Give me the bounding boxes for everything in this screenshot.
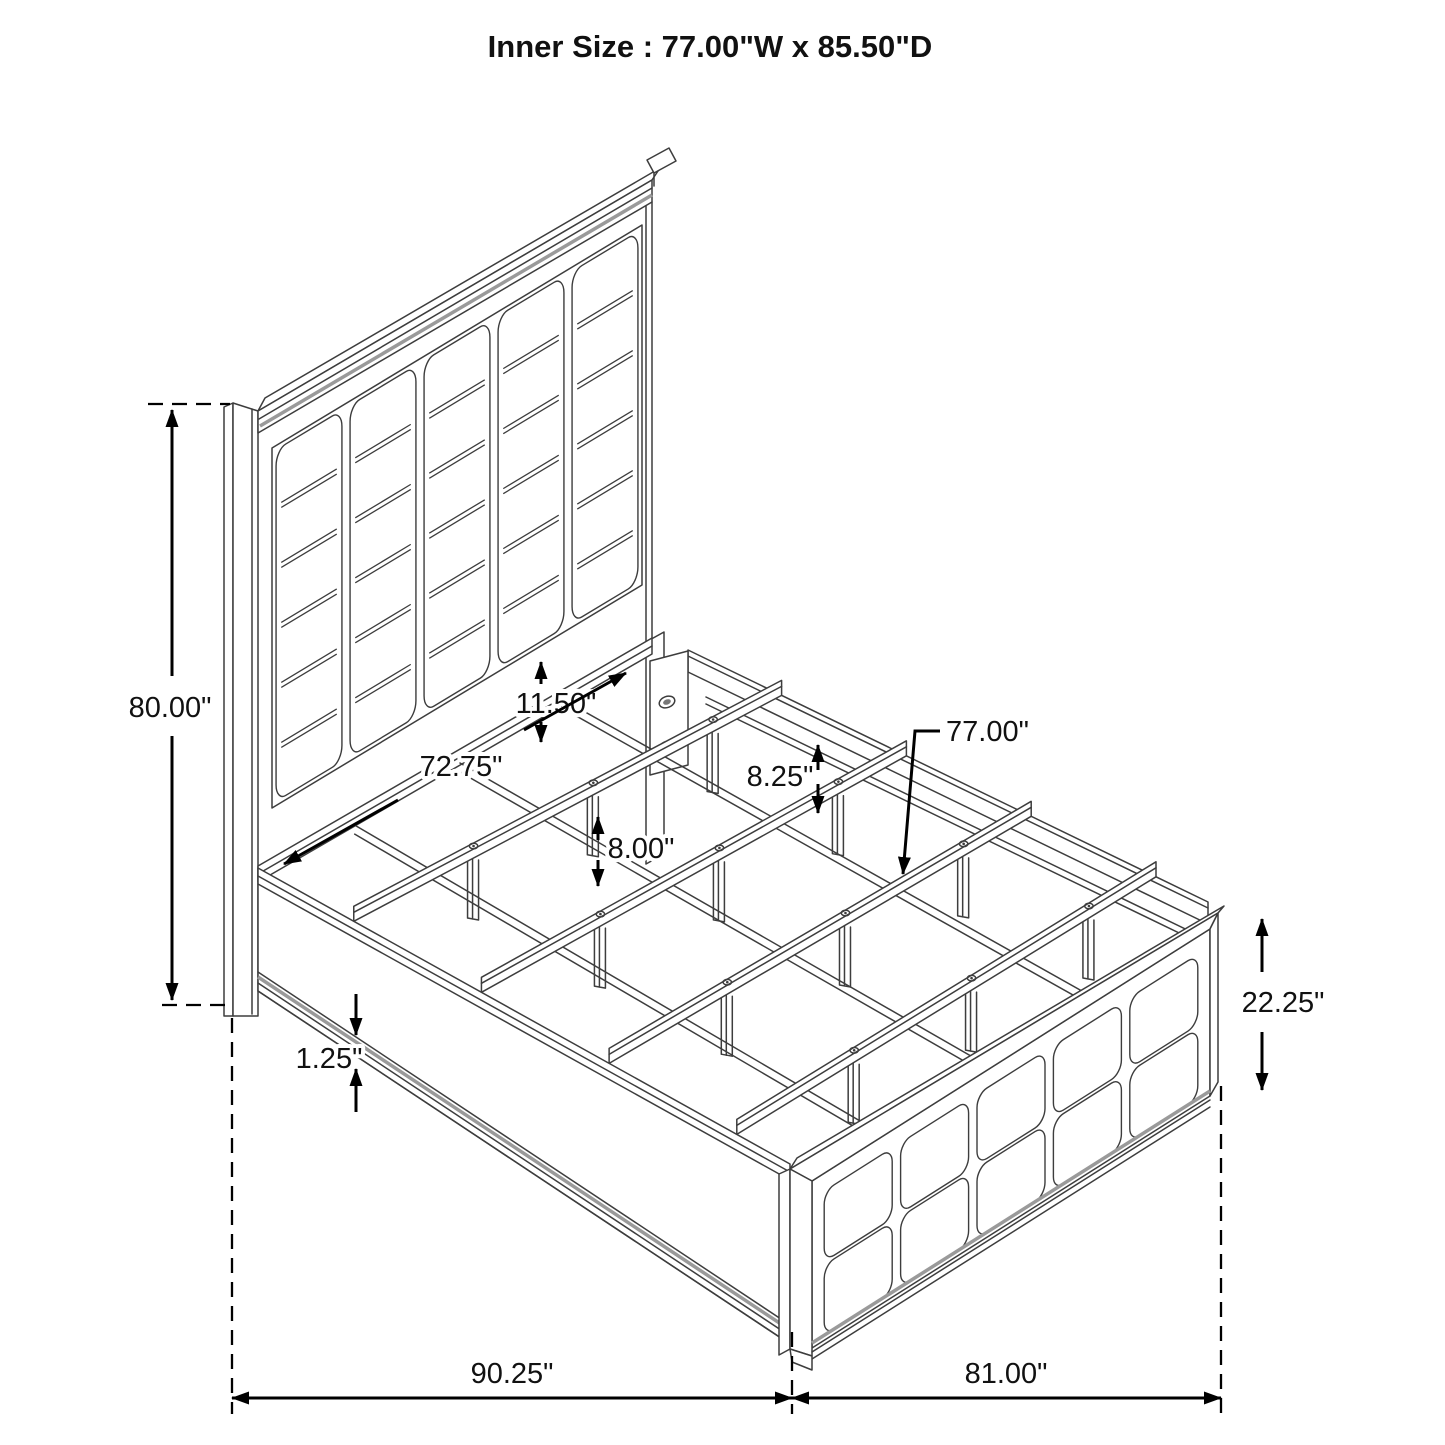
dim-label-footboard-height: 22.25" [1242,987,1325,1019]
slat-leg [594,926,605,988]
dim-label-overall-width: 81.00" [965,1358,1048,1390]
dim-overall-width: 81.00" [792,1358,1221,1398]
dim-label-slat-length: 77.00" [946,716,1029,748]
slat-leg [958,856,969,918]
dim-label-plinth: 1.25" [296,1043,363,1075]
dim-label-overall-length: 90.25" [471,1358,554,1390]
slat-leg [832,794,843,856]
dim-label-rail-height: 8.25" [747,761,814,793]
dim-label-inner-span: 72.75" [420,751,503,783]
slat-leg [966,990,977,1052]
diagram-canvas: 80.00" 11.50" 72.75" 8.25" 8.00" [0,0,1445,1445]
right-side-rail [650,650,1208,946]
slat-leg [713,860,724,922]
left-side-rail [258,868,790,1344]
footboard [779,906,1224,1370]
slat-leg [1083,918,1094,980]
slat-leg [707,732,718,794]
dim-label-leg-height: 8.00" [608,833,675,865]
dim-label-headboard-height: 80.00" [129,692,212,724]
slat-leg [721,994,732,1056]
headboard [224,148,676,1016]
dim-headboard-height: 80.00" [129,404,230,1005]
dim-label-panel-gap: 11.50" [516,688,597,720]
diagram-title: Inner Size : 77.00"W x 85.50"D [488,29,933,64]
slat-leg [468,858,479,920]
dim-panel-gap: 11.50" [516,662,597,742]
slat-leg [839,925,850,987]
slat [481,741,906,992]
dim-footboard-height: 22.25" [1242,919,1325,1090]
bed-frame-dimension-diagram: 80.00" 11.50" 72.75" 8.25" 8.00" [0,0,1445,1445]
headboard-top-cap [647,148,676,173]
